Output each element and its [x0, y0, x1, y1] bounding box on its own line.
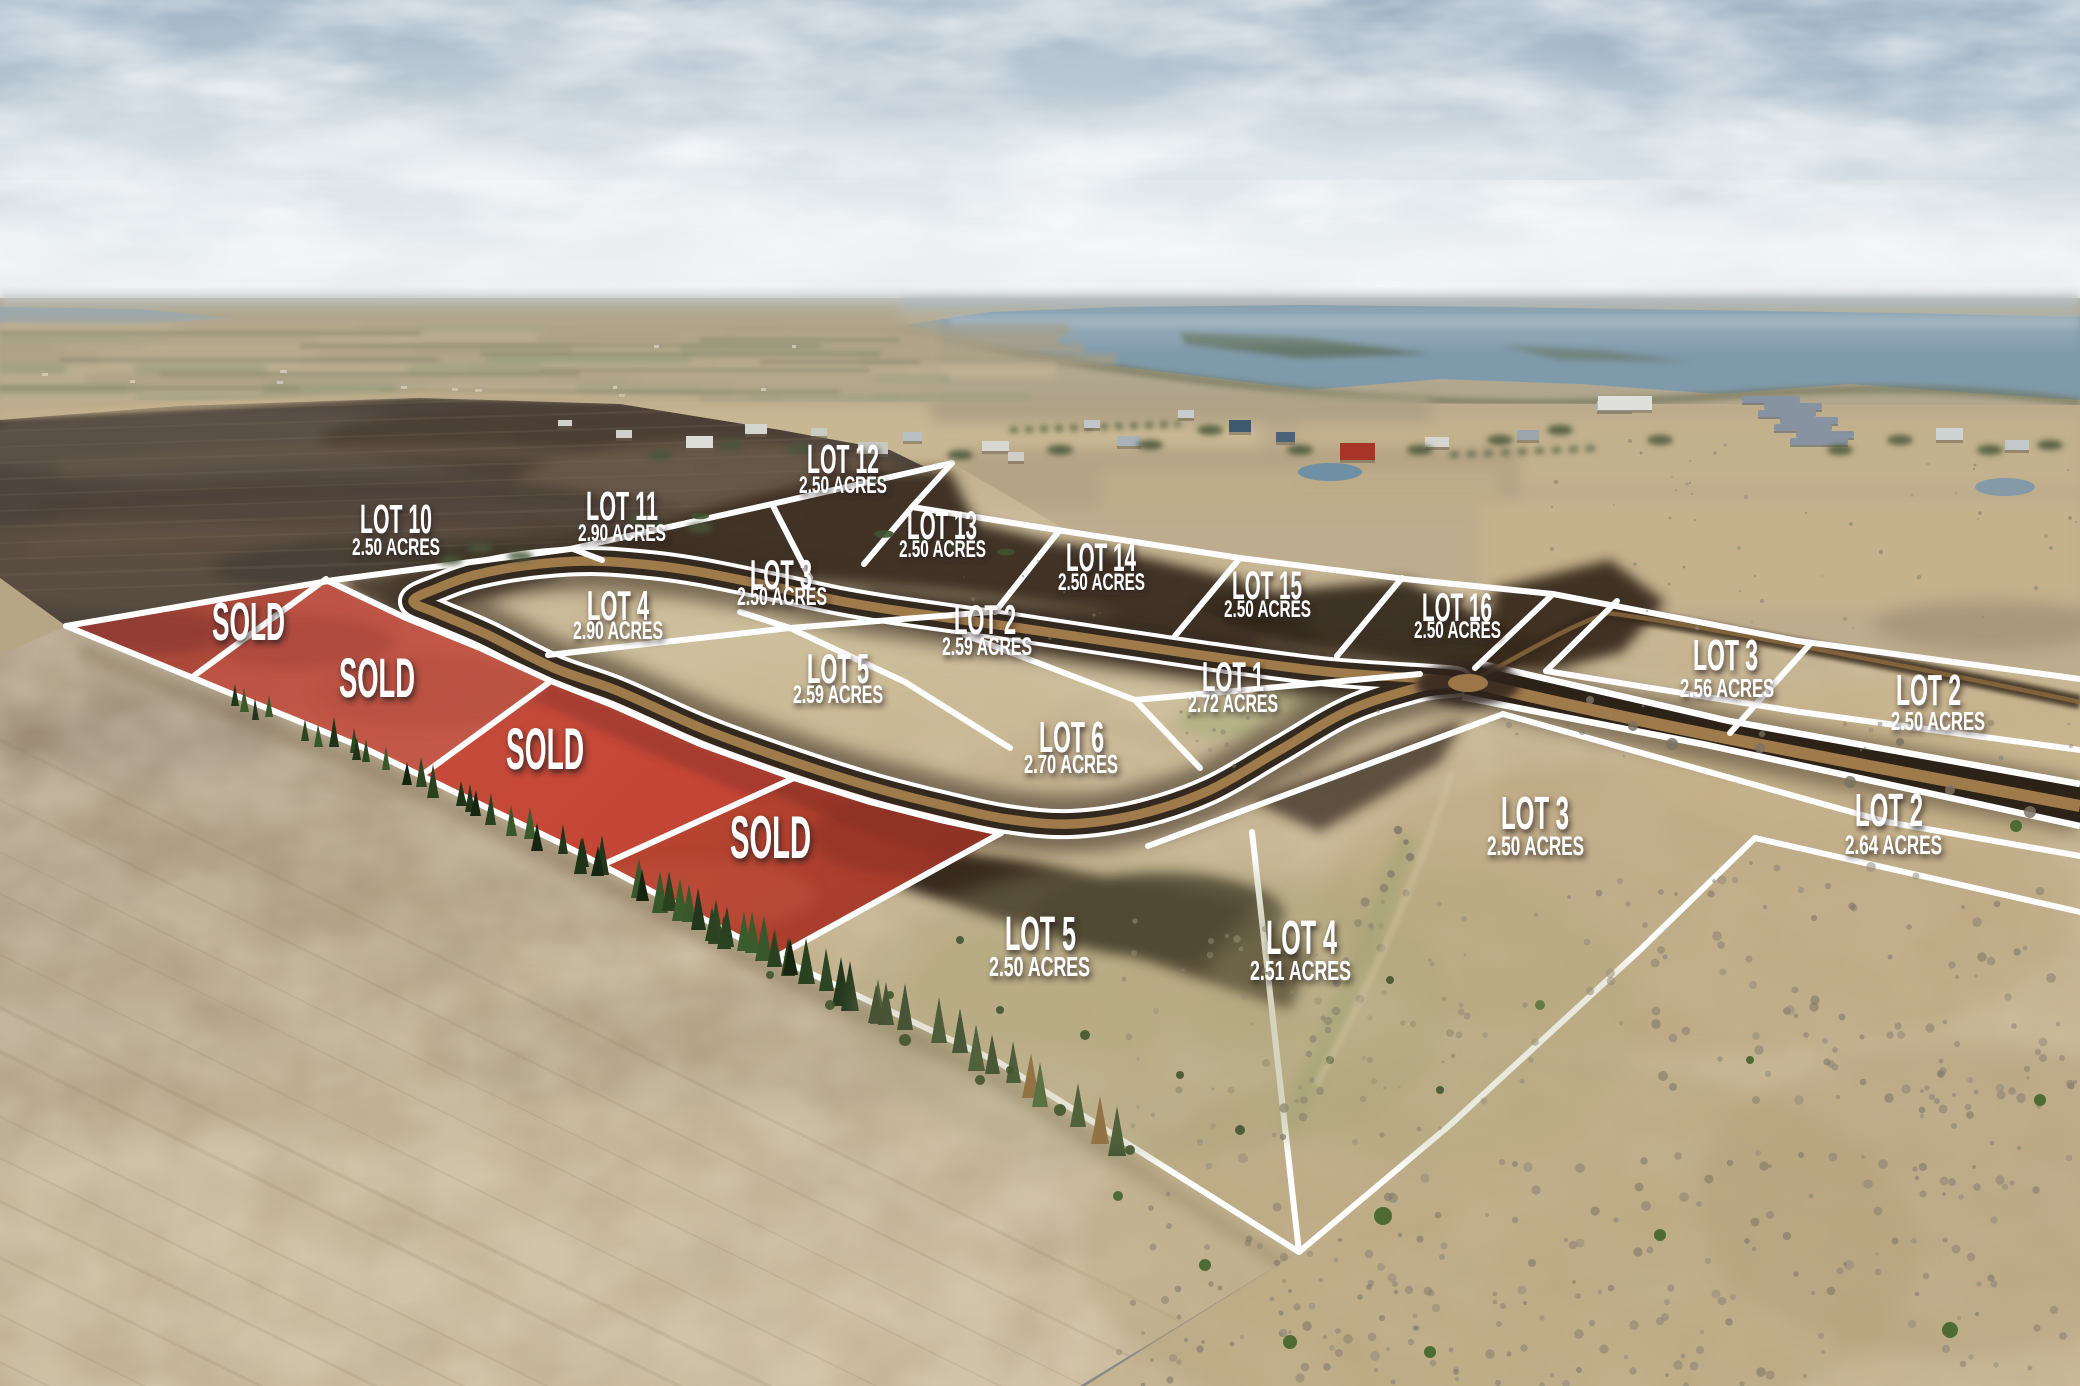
svg-text:2.59 ACRES: 2.59 ACRES: [793, 681, 883, 709]
svg-text:SOLD: SOLD: [506, 717, 584, 782]
svg-text:2.50 ACRES: 2.50 ACRES: [1891, 706, 1985, 736]
svg-text:2.50 ACRES: 2.50 ACRES: [1058, 569, 1145, 596]
svg-text:2.50 ACRES: 2.50 ACRES: [737, 583, 827, 611]
svg-text:2.50 ACRES: 2.50 ACRES: [989, 951, 1090, 982]
svg-text:2.72 ACRES: 2.72 ACRES: [1188, 690, 1278, 718]
svg-text:2.56 ACRES: 2.56 ACRES: [1680, 673, 1774, 703]
svg-text:2.70 ACRES: 2.70 ACRES: [1024, 749, 1118, 779]
svg-text:SOLD: SOLD: [339, 646, 415, 709]
svg-text:2.90 ACRES: 2.90 ACRES: [573, 617, 663, 645]
svg-text:2.50 ACRES: 2.50 ACRES: [1487, 831, 1584, 861]
svg-text:2.50 ACRES: 2.50 ACRES: [1224, 596, 1311, 623]
svg-text:2.50 ACRES: 2.50 ACRES: [799, 472, 887, 499]
svg-text:2.50 ACRES: 2.50 ACRES: [1414, 617, 1501, 644]
svg-text:2.50 ACRES: 2.50 ACRES: [352, 534, 440, 561]
svg-text:2.59 ACRES: 2.59 ACRES: [942, 633, 1032, 661]
svg-text:LOT 2: LOT 2: [1855, 784, 1923, 836]
svg-text:2.51 ACRES: 2.51 ACRES: [1250, 955, 1351, 986]
svg-text:SOLD: SOLD: [212, 592, 285, 652]
svg-text:2.50 ACRES: 2.50 ACRES: [899, 536, 986, 563]
svg-text:2.64 ACRES: 2.64 ACRES: [1845, 830, 1942, 860]
svg-text:2.90 ACRES: 2.90 ACRES: [578, 520, 666, 547]
svg-text:SOLD: SOLD: [730, 804, 811, 871]
